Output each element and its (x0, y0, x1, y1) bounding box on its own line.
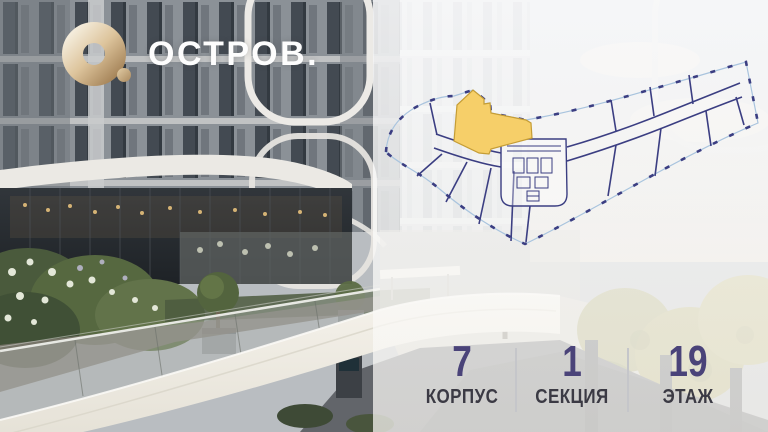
promo-slide: ОСТРОВ. 7 КОРПУС 1 СЕКЦИЯ 19 ЭТАЖ (0, 0, 768, 432)
stat-korpus-value: 7 (414, 341, 510, 383)
core-elevators (501, 139, 567, 206)
stat-sektsiya-label: СЕКЦИЯ (521, 387, 623, 407)
logo-wordmark: ОСТРОВ. (148, 22, 319, 86)
stat-etazh-label: ЭТАЖ (637, 387, 739, 407)
stat-sektsiya: 1 СЕКЦИЯ (512, 341, 632, 407)
stat-etazh-value: 19 (640, 341, 736, 383)
stat-korpus: 7 КОРПУС (402, 341, 522, 407)
logo-dot (117, 68, 131, 82)
stat-sektsiya-value: 1 (524, 341, 620, 383)
stat-korpus-label: КОРПУС (411, 387, 513, 407)
unit-location-stats: 7 КОРПУС 1 СЕКЦИЯ 19 ЭТАЖ (396, 341, 748, 421)
stat-etazh: 19 ЭТАЖ (628, 341, 748, 407)
floor-plan (380, 55, 768, 255)
o-ring-icon (62, 22, 134, 86)
brand-logo: ОСТРОВ. (62, 22, 319, 86)
balcony-outline (386, 62, 758, 244)
